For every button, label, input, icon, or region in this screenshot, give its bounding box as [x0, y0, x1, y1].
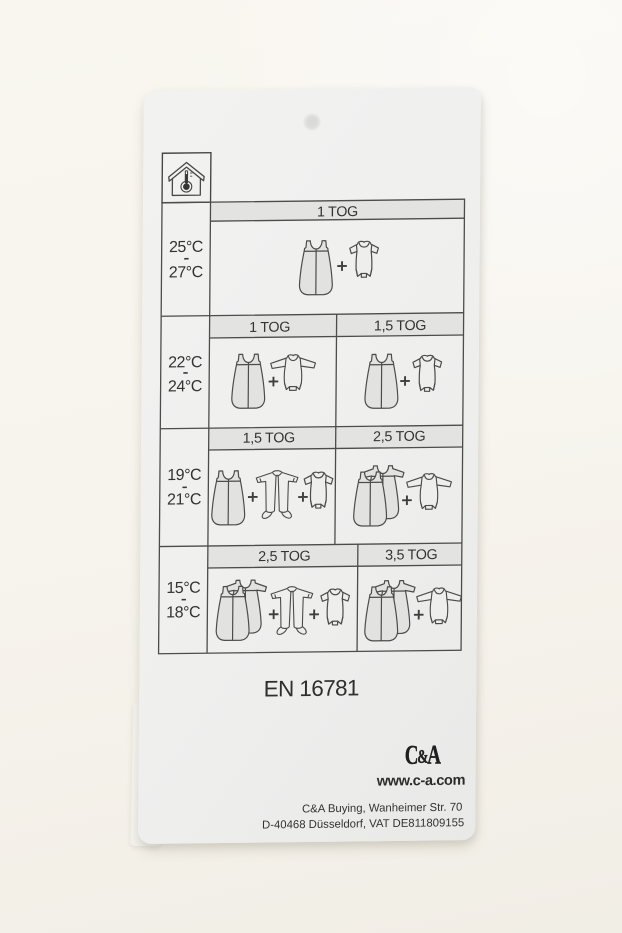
svg-text:C&A: C&A: [405, 740, 442, 771]
svg-text:1,5 TOG: 1,5 TOG: [243, 430, 296, 447]
svg-text:22°C: 22°C: [168, 354, 202, 371]
svg-text:1 TOG: 1 TOG: [317, 204, 358, 220]
svg-text:www.c-a.com: www.c-a.com: [376, 773, 466, 790]
svg-text:2,5 TOG: 2,5 TOG: [258, 548, 311, 565]
svg-text:1,5 TOG: 1,5 TOG: [374, 318, 427, 335]
svg-text:2,5 TOG: 2,5 TOG: [373, 429, 426, 446]
svg-text:21°C: 21°C: [167, 491, 201, 508]
svg-text:15°C: 15°C: [166, 580, 200, 597]
svg-text:3,5 TOG: 3,5 TOG: [385, 547, 438, 564]
svg-text:D-40468 Düsseldorf, VAT DE8118: D-40468 Düsseldorf, VAT DE811809155: [262, 817, 464, 831]
svg-text:25°C: 25°C: [169, 239, 203, 256]
svg-text:27°C: 27°C: [169, 264, 203, 281]
svg-text:19°C: 19°C: [167, 467, 201, 484]
svg-text:18°C: 18°C: [166, 604, 200, 621]
svg-text:24°C: 24°C: [168, 378, 202, 395]
svg-text:EN 16781: EN 16781: [264, 675, 360, 701]
svg-text:1 TOG: 1 TOG: [249, 320, 290, 336]
svg-text:C&A Buying, Wanheimer Str. 70: C&A Buying, Wanheimer Str. 70: [302, 802, 462, 816]
